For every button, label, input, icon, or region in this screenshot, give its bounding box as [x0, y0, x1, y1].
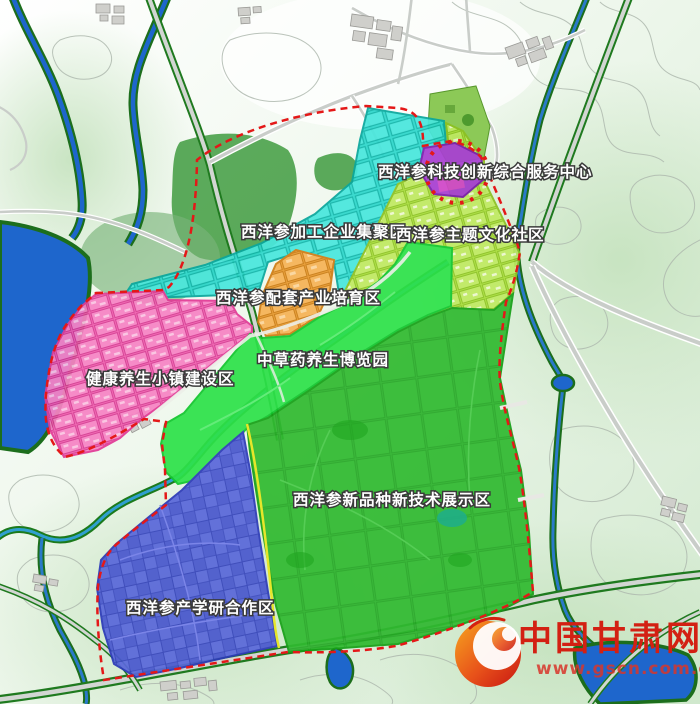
label-culture-zone: 西洋参主题文化社区 [396, 225, 545, 244]
label-supporting-zone: 西洋参配套产业培育区 [216, 288, 381, 307]
label-wellness-town: 健康养生小镇建设区 [86, 369, 235, 388]
label-processing-zone: 西洋参加工企业集聚区 [241, 222, 406, 241]
label-service-center: 西洋参科技创新综合服务中心 [378, 162, 593, 181]
label-display-zone: 西洋参新品种新技术展示区 [293, 490, 491, 509]
planning-map-screenshot: 西洋参科技创新综合服务中心 西洋参加工企业集聚区 西洋参主题文化社区 西洋参配套… [0, 0, 700, 704]
label-herbal-expo: 中草药养生博览园 [257, 350, 389, 369]
planning-map: 西洋参科技创新综合服务中心 西洋参加工企业集聚区 西洋参主题文化社区 西洋参配套… [0, 0, 700, 704]
watermark-site-name: 中国甘肃网 [518, 619, 700, 659]
watermark: 中国甘肃网 www.gscn.com.cn [455, 618, 700, 687]
watermark-site-url: www.gscn.com.cn [536, 659, 700, 679]
label-cooperation-zone: 西洋参产学研合作区 [126, 598, 275, 617]
